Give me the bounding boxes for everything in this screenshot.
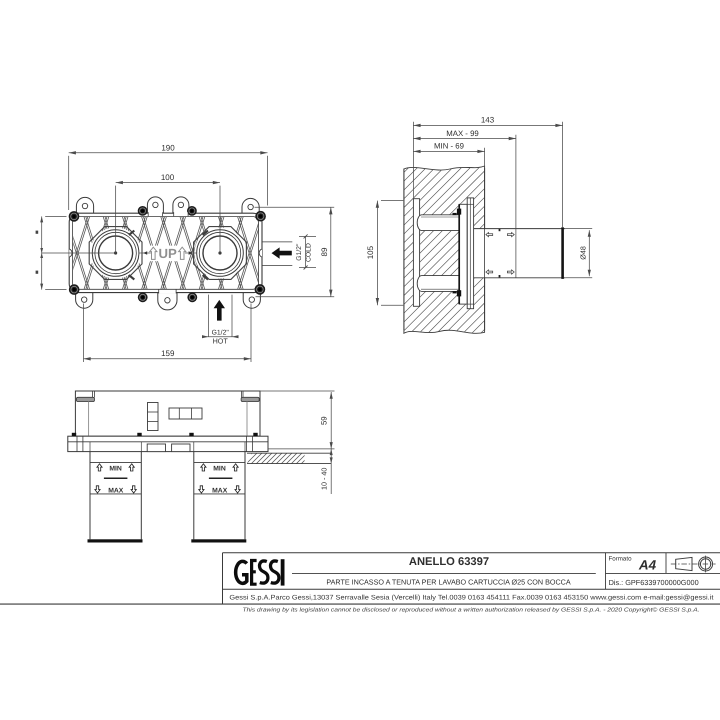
svg-text:100: 100 (161, 173, 175, 182)
svg-text:143: 143 (481, 116, 495, 125)
svg-text:MIN: MIN (109, 465, 122, 472)
svg-text:G1/2": G1/2" (296, 243, 303, 261)
svg-text:ANELLO 63397: ANELLO 63397 (409, 556, 489, 568)
svg-text:MIN: MIN (213, 465, 226, 472)
svg-text:59: 59 (320, 416, 329, 425)
svg-text:190: 190 (161, 143, 175, 152)
svg-text:HOT: HOT (213, 337, 229, 346)
svg-text:MAX: MAX (212, 487, 228, 494)
svg-text:MAX: MAX (108, 487, 124, 494)
svg-text:A4: A4 (638, 557, 657, 572)
svg-text:UP: UP (159, 246, 178, 261)
svg-text:MAX - 99: MAX - 99 (446, 129, 479, 138)
svg-text:Formato: Formato (609, 556, 633, 563)
svg-text:Ø48: Ø48 (579, 246, 588, 260)
svg-text:89: 89 (320, 247, 329, 256)
svg-text:Dis.: GPF6339700000G000: Dis.: GPF6339700000G000 (609, 578, 699, 587)
svg-text:159: 159 (161, 349, 175, 358)
svg-text:10 - 40: 10 - 40 (320, 468, 329, 490)
svg-text:PARTE INCASSO A TENUTA PER LAV: PARTE INCASSO A TENUTA PER LAVABO CARTUC… (326, 577, 571, 586)
svg-text:G1/2": G1/2" (212, 329, 230, 336)
svg-text:105: 105 (366, 245, 375, 259)
svg-text:MIN - 69: MIN - 69 (434, 142, 464, 151)
svg-text:Gessi S.p.A.Parco Gessi,13037: Gessi S.p.A.Parco Gessi,13037 Serravalle… (229, 595, 713, 602)
svg-text:This drawing by its legislatio: This drawing by its legislation cannot b… (243, 607, 700, 614)
svg-text:COLD: COLD (305, 243, 312, 262)
